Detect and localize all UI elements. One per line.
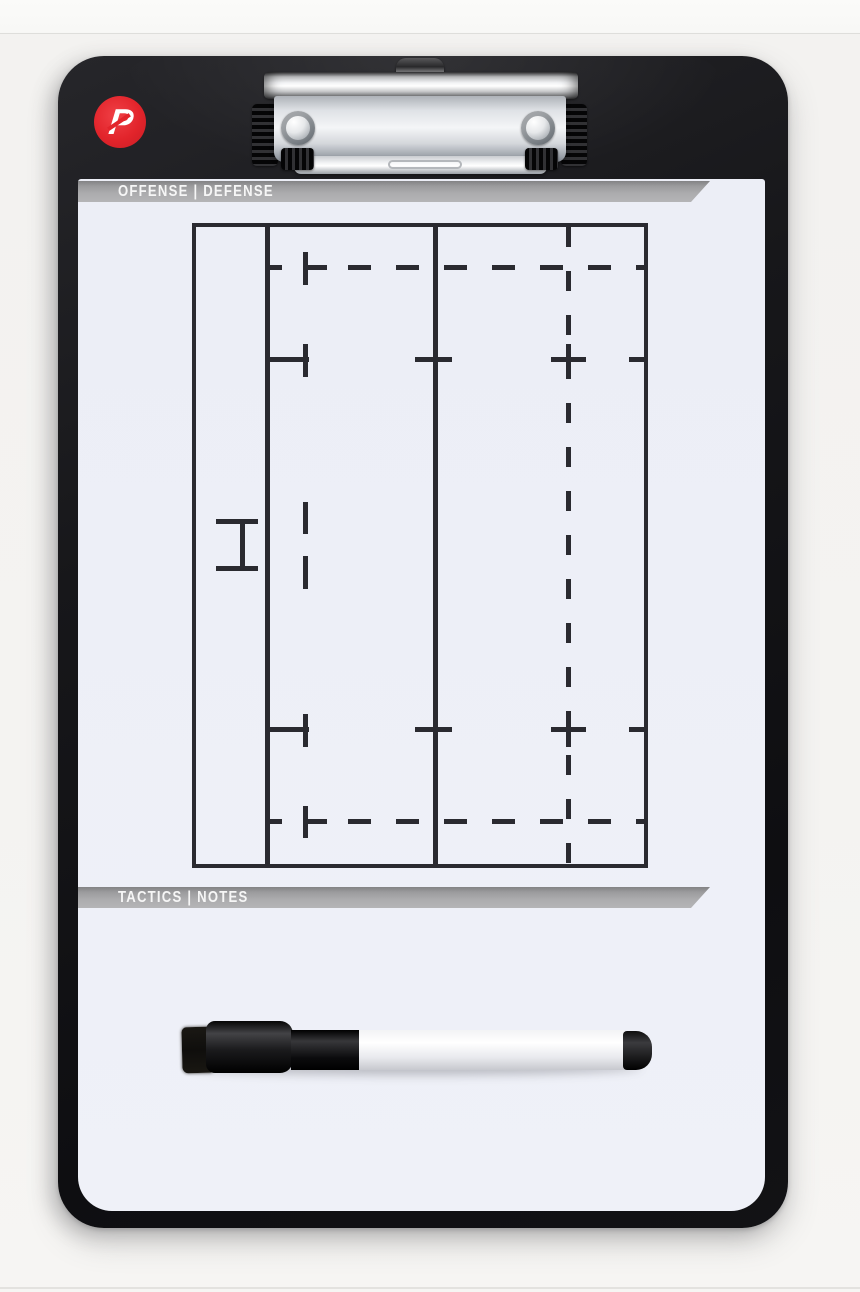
15m-bottom-10m-cross-v [566,714,571,747]
15m-top-10m-cross-v [566,344,571,377]
15m-bottom-tick [303,714,308,747]
22m-line [433,227,438,864]
15m-bottom-22m-cross [415,727,452,732]
5m-bottom-dashed-line [348,819,644,824]
5m-top-stub [267,265,282,270]
5m-bottom-stub [267,819,282,824]
pen-collar [291,1030,361,1070]
15m-top-22m-cross [415,357,452,362]
marker-pen [182,1018,652,1080]
5m-bottom-tick-arm [305,819,327,824]
15m-top-tick [303,344,308,377]
brand-logo: P [94,96,146,148]
5m-post-dash-lower [303,556,308,589]
5m-top-tick-arm [305,265,327,270]
5m-post-dash-upper [303,502,308,534]
clip-rubber-grip-bottom-right [525,148,558,170]
tactics-notes-label: TACTICS | NOTES [118,889,248,907]
clip-lip-slot [388,160,462,169]
pen-end-cap [623,1031,652,1070]
15m-bottom-halfway-tick [629,727,644,732]
clipboard: P OFFENSE | DEFENSE [58,56,788,1228]
15m-top-halfway-tick [629,357,644,362]
product-photo: P OFFENSE | DEFENSE [0,0,860,1292]
tactics-notes-banner: TACTICS | NOTES [78,887,710,908]
goal-post-stem [240,519,245,571]
whiteboard-face: OFFENSE | DEFENSE [78,179,765,1211]
goal-post-bar-top [216,519,258,524]
10m-dashed-line [566,227,571,864]
background-seam-line [0,33,860,34]
background-bottom-shadow [0,1287,860,1289]
clip-rivet-left [281,111,315,145]
pen-barrel [359,1030,625,1070]
clip-rivet-right [521,111,555,145]
try-line [265,227,270,864]
offense-defense-banner: OFFENSE | DEFENSE [78,181,710,202]
clip-spring-bar [264,72,578,99]
offense-defense-label: OFFENSE | DEFENSE [118,183,274,201]
rugby-field-diagram [192,223,648,868]
pen-cap [206,1021,293,1073]
clip-rubber-grip-bottom-left [281,148,314,170]
5m-top-dashed-line [348,265,644,270]
goal-post-bar-bottom [216,566,258,571]
